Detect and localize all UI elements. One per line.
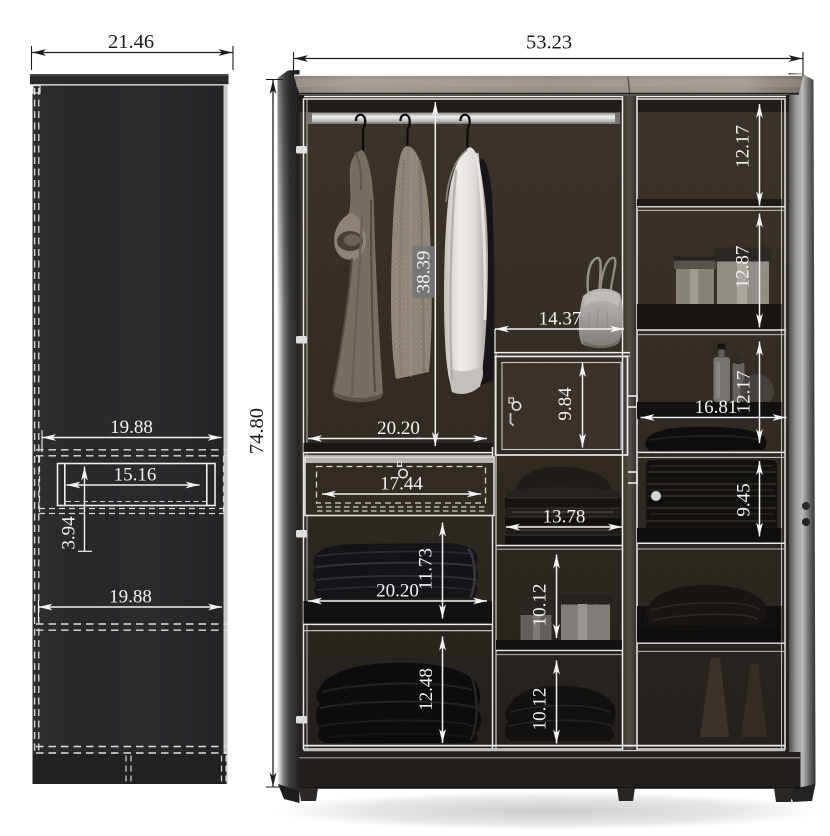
svg-text:10.12: 10.12 <box>530 584 551 627</box>
svg-text:19.88: 19.88 <box>110 417 153 438</box>
svg-text:12.17: 12.17 <box>733 125 754 168</box>
svg-text:3.94: 3.94 <box>59 516 80 550</box>
svg-text:53.23: 53.23 <box>526 32 572 54</box>
svg-text:20.20: 20.20 <box>377 418 420 439</box>
svg-text:12.87: 12.87 <box>733 246 754 289</box>
svg-text:14.37: 14.37 <box>539 309 582 330</box>
svg-text:74.80: 74.80 <box>246 408 268 454</box>
svg-text:9.45: 9.45 <box>734 483 755 516</box>
svg-text:13.78: 13.78 <box>543 507 586 528</box>
svg-text:15.16: 15.16 <box>114 465 157 486</box>
svg-text:16.81: 16.81 <box>695 397 738 418</box>
svg-text:38.39: 38.39 <box>414 251 435 294</box>
svg-text:17.44: 17.44 <box>380 474 423 495</box>
svg-text:9.84: 9.84 <box>555 387 576 421</box>
svg-text:21.46: 21.46 <box>108 31 154 53</box>
svg-text:12.48: 12.48 <box>416 668 437 711</box>
svg-text:20.20: 20.20 <box>376 581 419 602</box>
svg-text:10.12: 10.12 <box>530 688 551 731</box>
svg-text:19.88: 19.88 <box>109 587 152 608</box>
